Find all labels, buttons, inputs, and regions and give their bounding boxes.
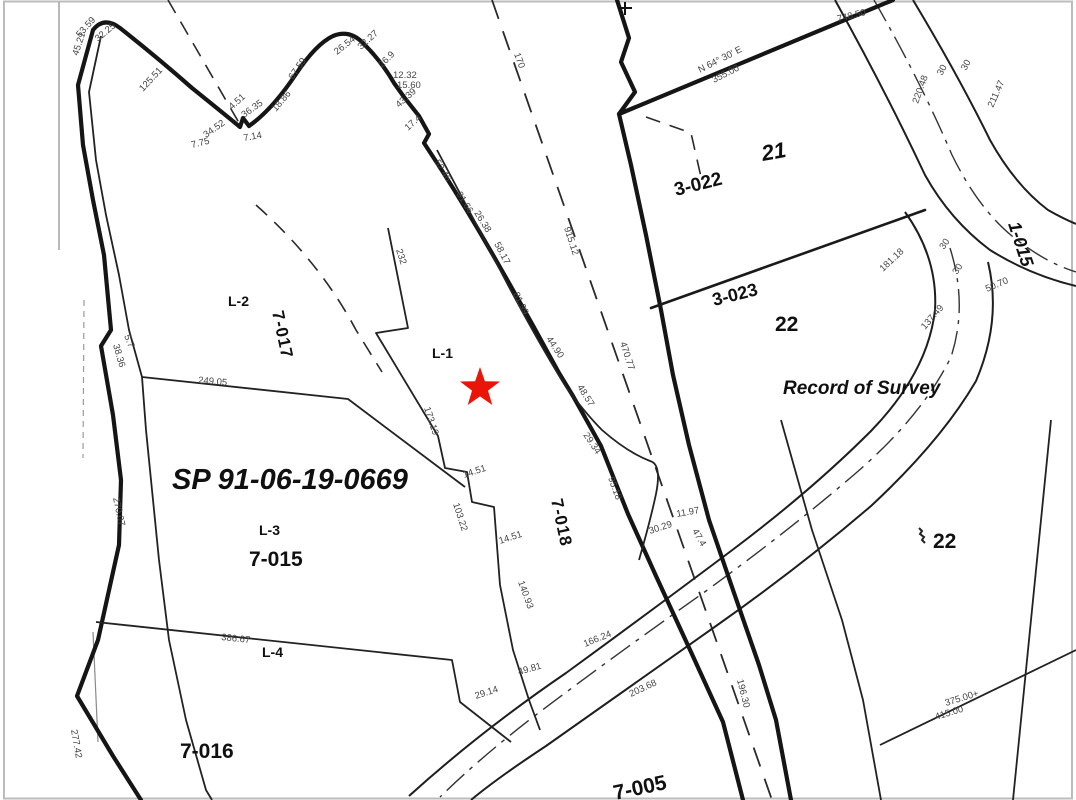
- parcel-map-svg: SP 91-06-19-0669Record of SurveyL-1L-2L-…: [0, 0, 1076, 800]
- map-background: [0, 0, 1076, 800]
- survey-map-canvas: SP 91-06-19-0669Record of SurveyL-1L-2L-…: [0, 0, 1076, 800]
- block-22b-label: 22: [933, 530, 956, 553]
- parcel-7-016-label: 7-016: [180, 740, 234, 763]
- lot-l3-label: L-3: [259, 522, 280, 538]
- block-22-label: 22: [775, 313, 798, 336]
- lot-l4-label: L-4: [262, 644, 283, 660]
- block-21-label: 21: [759, 137, 788, 166]
- lot-l1-label: L-1: [432, 345, 453, 361]
- survey-number-label: SP 91-06-19-0669: [172, 464, 408, 496]
- lot-l2-label: L-2: [228, 293, 249, 309]
- parcel-7-015-label: 7-015: [249, 548, 303, 571]
- record-of-survey-label: Record of Survey: [783, 378, 942, 399]
